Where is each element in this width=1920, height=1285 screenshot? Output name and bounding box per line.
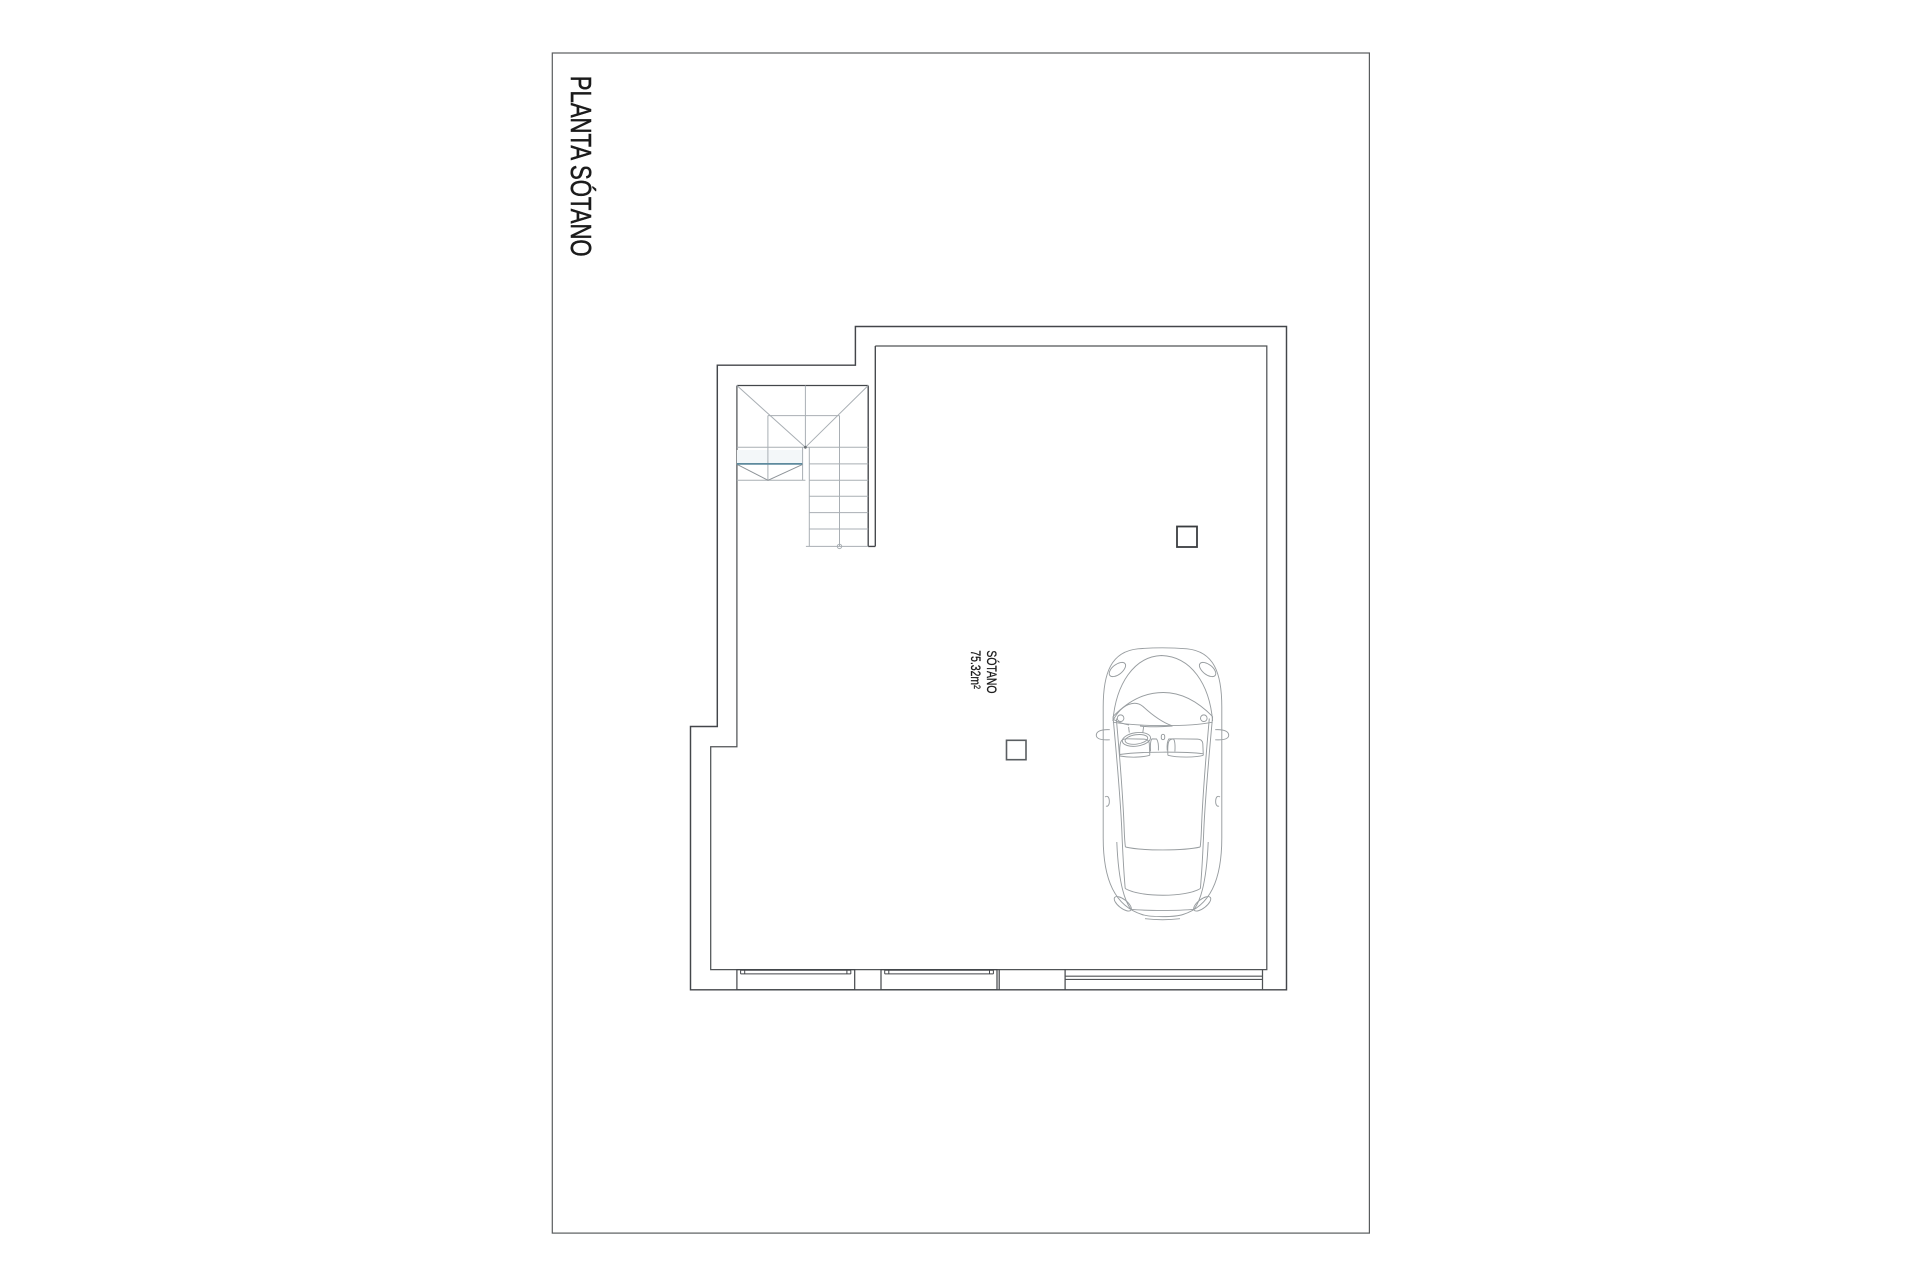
svg-text:PLANTA SÓTANO: PLANTA SÓTANO xyxy=(564,76,597,257)
svg-text:75.32m2: 75.32m2 xyxy=(967,650,983,689)
svg-text:SÓTANO: SÓTANO xyxy=(984,650,1001,693)
